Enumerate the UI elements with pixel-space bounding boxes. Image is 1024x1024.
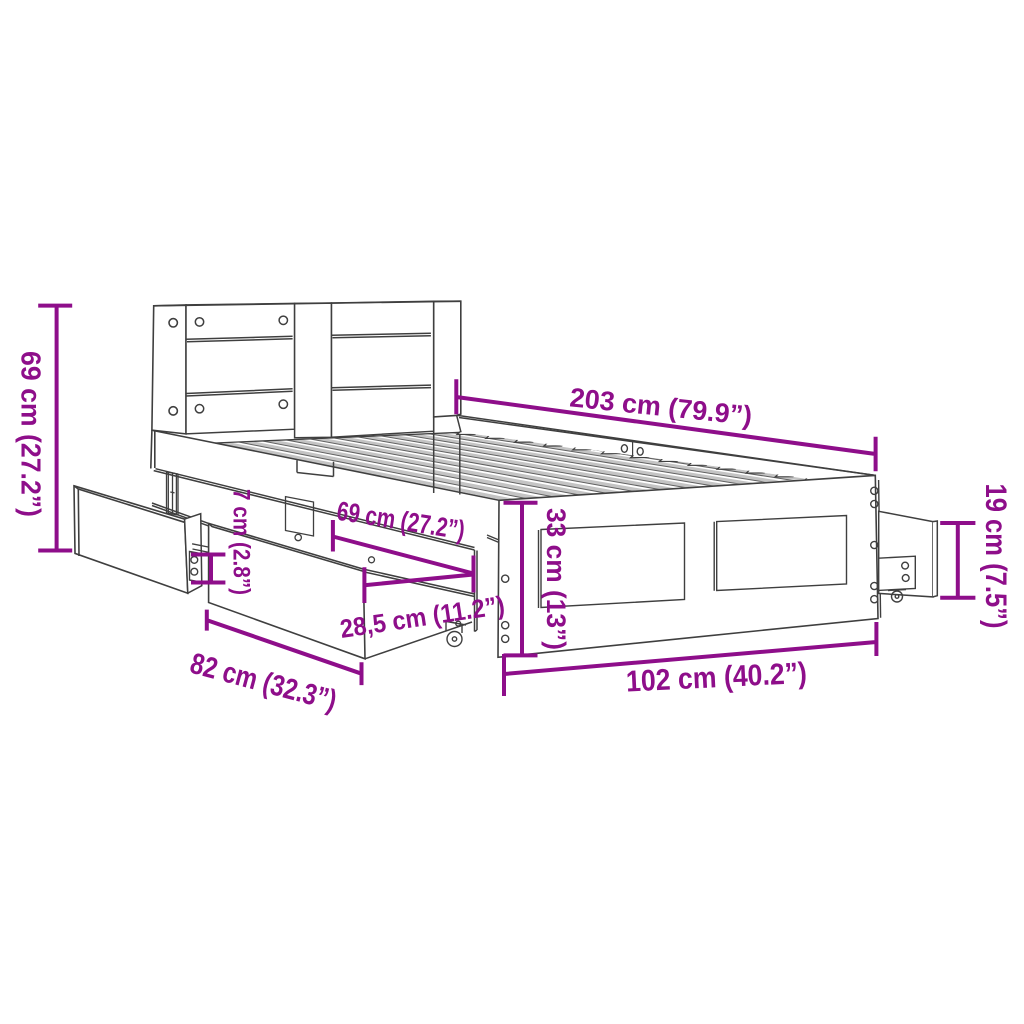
svg-text:69 cm (27.2”): 69 cm (27.2”) bbox=[16, 351, 47, 517]
svg-text:33 cm (13”): 33 cm (13”) bbox=[541, 508, 571, 650]
svg-text:7 cm (2.8”): 7 cm (2.8”) bbox=[228, 489, 255, 595]
svg-text:19 cm (7.5”): 19 cm (7.5”) bbox=[979, 484, 1012, 629]
